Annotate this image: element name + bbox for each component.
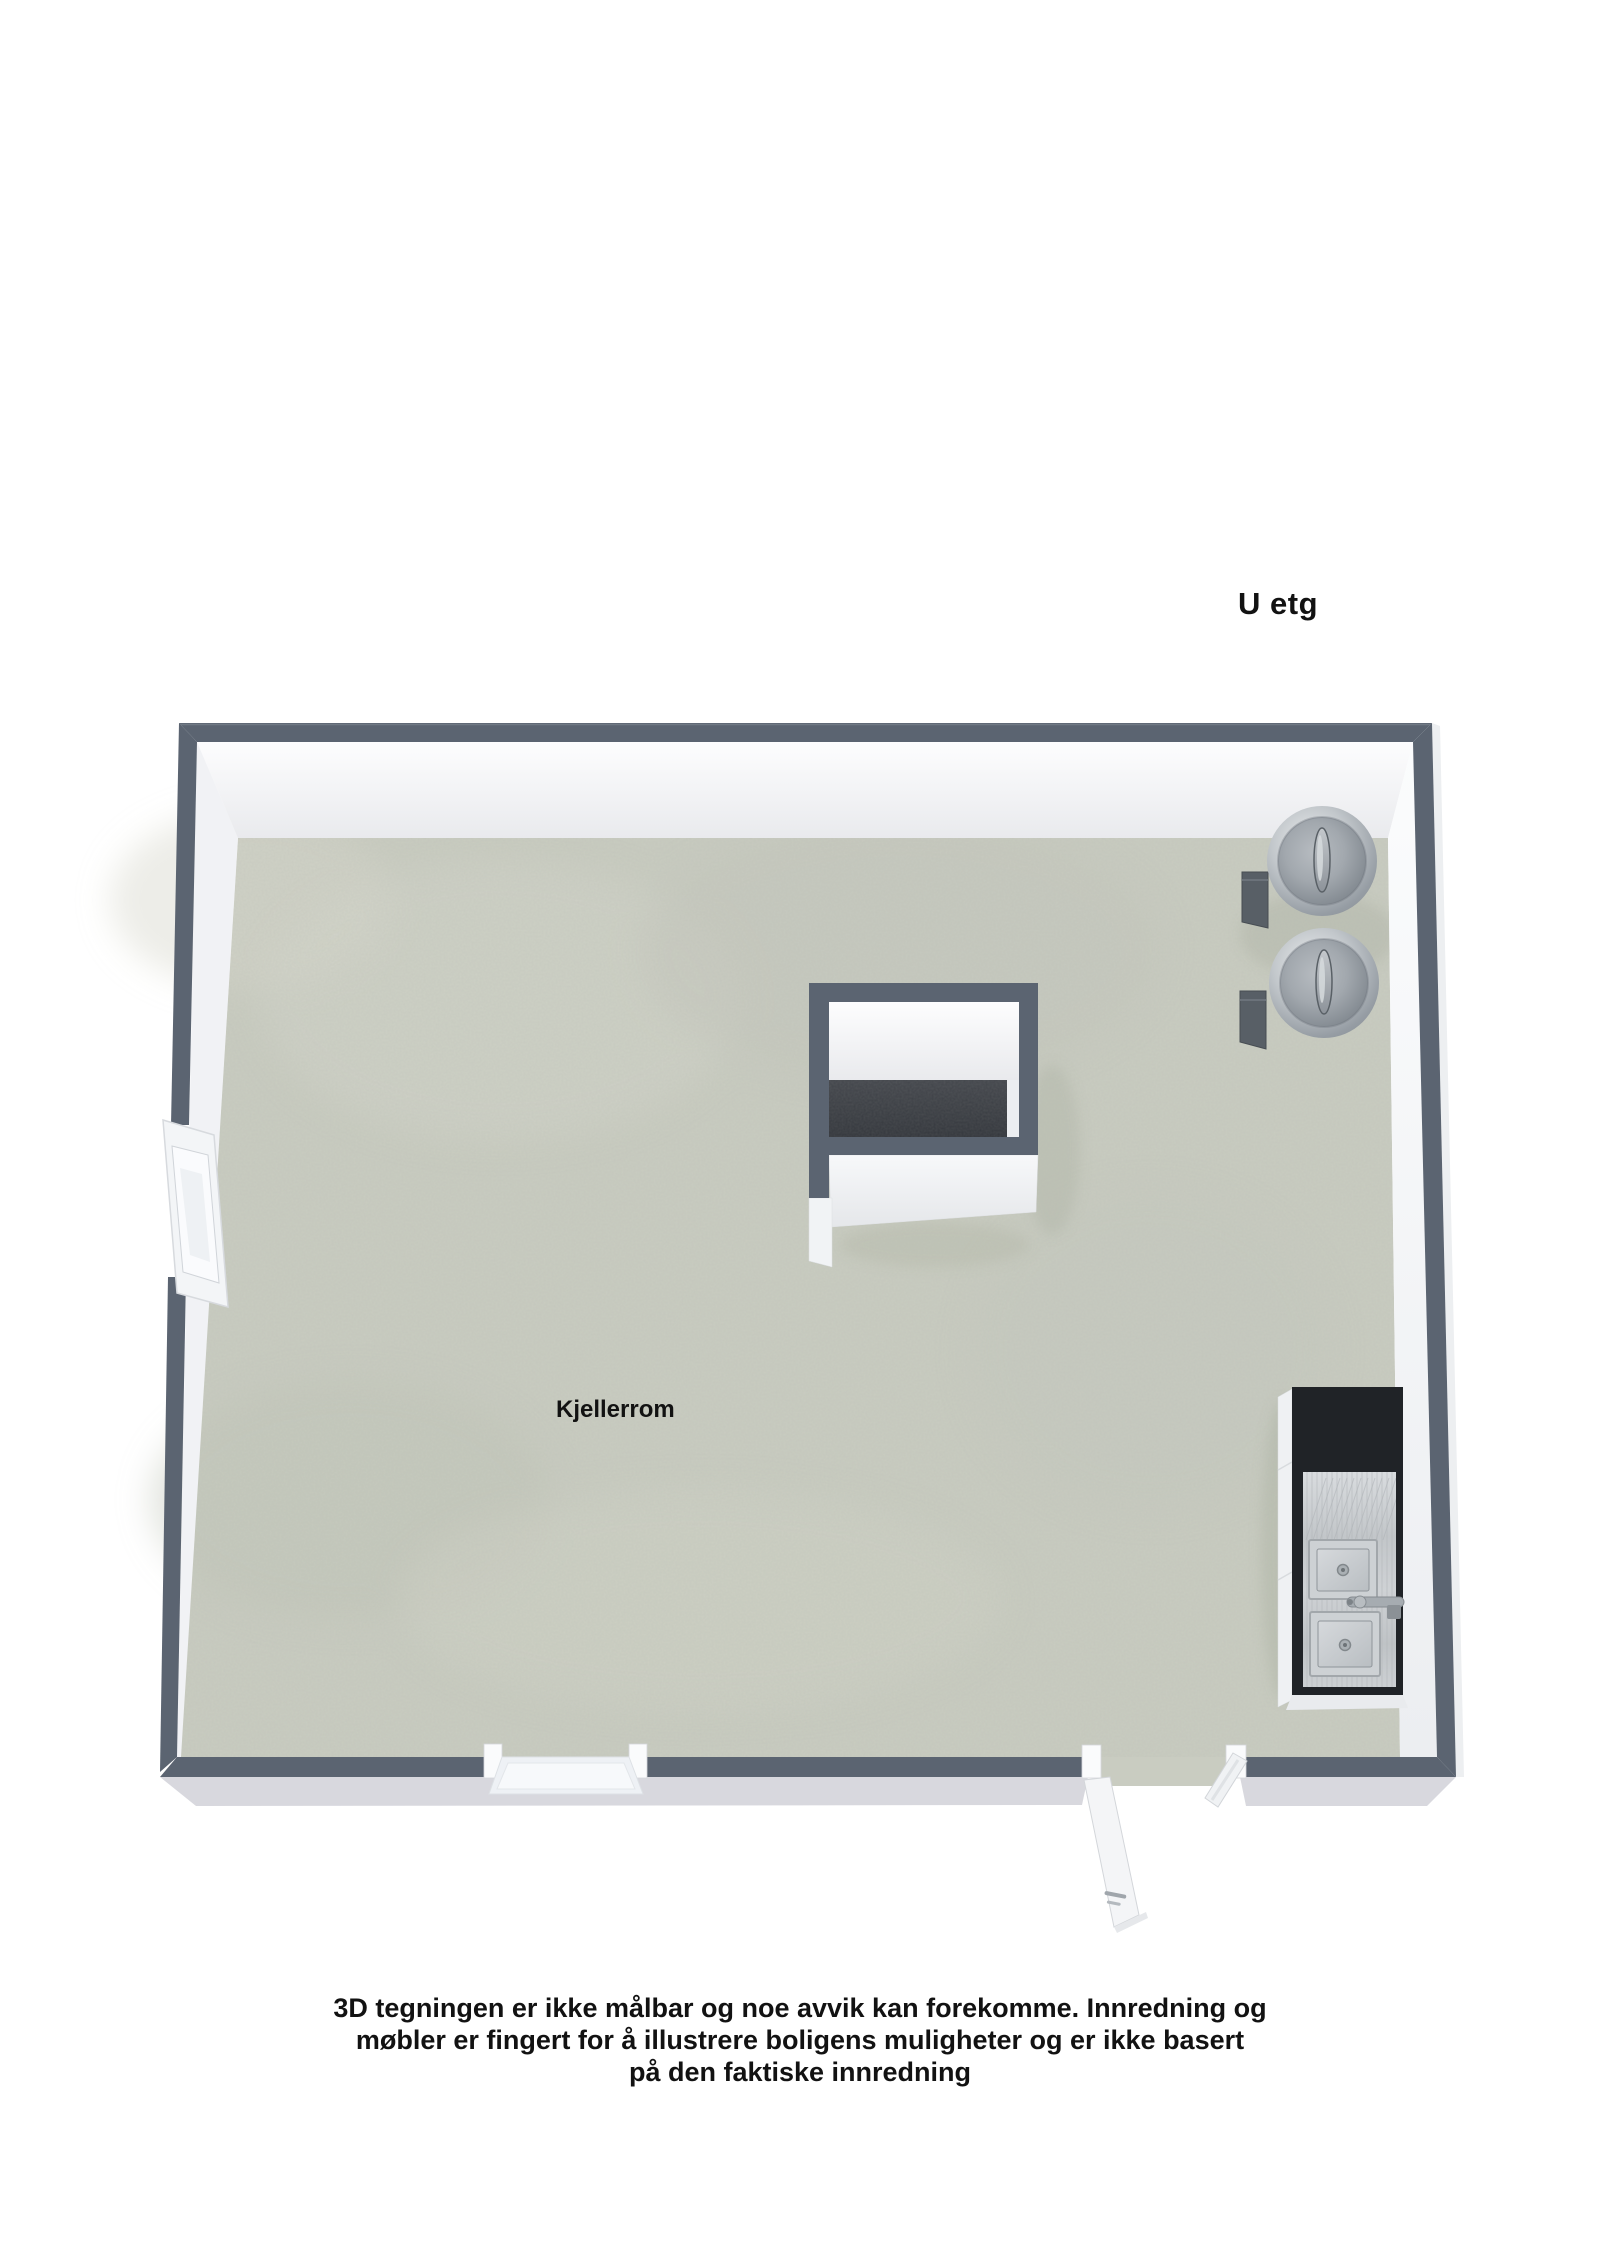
disclaimer-line: 3D tegningen er ikke målbar og noe avvik…	[0, 1992, 1600, 2024]
disclaimer: 3D tegningen er ikke målbar og noe avvik…	[0, 1992, 1600, 2088]
level-label: U etg	[1238, 586, 1318, 622]
disclaimer-line: på den faktiske innredning	[0, 2056, 1600, 2088]
disclaimer-line: møbler er fingert for å illustrere bolig…	[0, 2024, 1600, 2056]
room-label: Kjellerrom	[556, 1396, 675, 1424]
floor	[110, 810, 1400, 1786]
sink-basin-2	[1310, 1612, 1380, 1676]
sink-basin-1	[1309, 1540, 1377, 1599]
basement-floor-plan	[0, 0, 1600, 2263]
double-sink-unit	[1278, 1387, 1408, 1710]
door-leaf	[1084, 1777, 1139, 1927]
